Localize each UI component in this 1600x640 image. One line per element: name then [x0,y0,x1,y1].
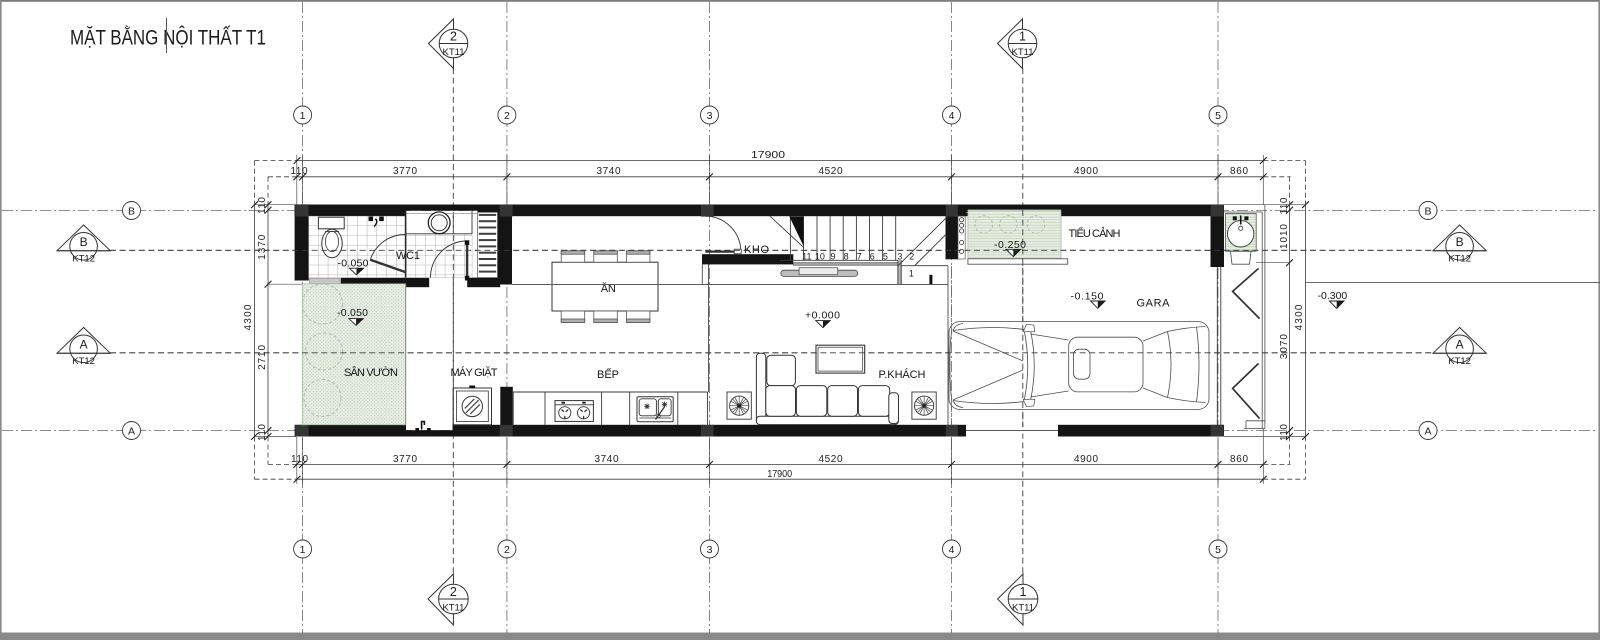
svg-text:1: 1 [1020,585,1027,599]
svg-text:A: A [1424,425,1431,437]
svg-text:1: 1 [300,544,306,556]
svg-text:4300: 4300 [243,304,254,330]
svg-text:860: 860 [1230,454,1248,465]
svg-text:110: 110 [291,166,308,177]
svg-text:3770: 3770 [393,166,417,177]
svg-text:2: 2 [504,110,510,122]
svg-text:2: 2 [504,544,510,556]
svg-text:KT11: KT11 [442,47,464,58]
svg-text:2: 2 [450,585,457,599]
svg-text:110: 110 [1279,424,1290,441]
svg-text:KT11: KT11 [442,603,464,614]
svg-text:4: 4 [949,544,955,556]
svg-text:110: 110 [257,424,268,441]
svg-text:SÂN VƯỜN: SÂN VƯỜN [344,366,398,379]
svg-text:3740: 3740 [597,166,621,177]
svg-text:860: 860 [1230,166,1248,177]
svg-text:1: 1 [909,269,914,279]
svg-text:2: 2 [909,252,914,262]
svg-text:MÁY GIẶT: MÁY GIẶT [451,366,498,379]
svg-text:5: 5 [1215,110,1221,122]
svg-text:3770: 3770 [393,454,417,465]
svg-text:B: B [80,235,88,249]
svg-text:2: 2 [450,30,457,44]
svg-text:B: B [1424,205,1431,217]
svg-text:5: 5 [1215,544,1221,556]
svg-text:4: 4 [949,110,955,122]
svg-text:1: 1 [300,110,306,122]
svg-text:B: B [1456,235,1464,249]
svg-text:MẶT BẰNG NỘI THẤT T1: MẶT BẰNG NỘI THẤT T1 [70,25,266,50]
svg-text:110: 110 [257,197,268,214]
svg-text:KT11: KT11 [1012,603,1034,614]
svg-text:KT11: KT11 [1011,47,1033,58]
svg-text:17900: 17900 [767,469,792,480]
svg-text:3070: 3070 [1279,334,1290,359]
svg-text:-0.300: -0.300 [1318,290,1348,302]
svg-text:8: 8 [844,252,849,262]
svg-text:5: 5 [883,252,888,262]
svg-text:A: A [80,338,88,352]
svg-text:TIỂU CẢNH: TIỂU CẢNH [1069,227,1121,240]
svg-text:KT12: KT12 [72,254,95,265]
svg-text:A: A [128,425,135,437]
svg-text:4900: 4900 [1074,454,1098,465]
svg-text:110: 110 [1279,197,1290,214]
svg-text:3: 3 [707,110,713,122]
svg-text:11: 11 [802,252,811,262]
svg-text:3: 3 [897,252,902,262]
svg-text:-0.050: -0.050 [337,307,368,319]
svg-text:KT12: KT12 [1448,254,1471,265]
svg-text:4300: 4300 [1294,304,1305,330]
svg-text:3740: 3740 [595,454,619,465]
svg-text:17900: 17900 [751,150,786,161]
svg-text:B: B [128,205,135,217]
svg-text:6: 6 [870,252,875,262]
svg-text:7: 7 [857,252,862,262]
svg-text:-0.050: -0.050 [338,258,369,270]
svg-text:BẾP: BẾP [597,368,619,381]
svg-text:1370: 1370 [257,234,268,259]
svg-text:2710: 2710 [257,344,268,369]
svg-text:1: 1 [1019,30,1026,44]
svg-text:3: 3 [707,544,713,556]
svg-text:WC1: WC1 [396,250,420,262]
svg-text:ĂN: ĂN [601,282,616,295]
svg-text:110: 110 [291,454,308,465]
svg-text:4520: 4520 [819,454,843,465]
svg-text:1010: 1010 [1279,224,1290,249]
svg-text:GARA: GARA [1137,297,1171,309]
svg-text:A: A [1456,338,1464,352]
svg-text:9: 9 [830,252,835,262]
svg-text:10: 10 [815,252,825,262]
svg-text:KT12: KT12 [72,356,95,367]
svg-text:+0.000: +0.000 [805,309,840,321]
svg-text:4900: 4900 [1074,166,1098,177]
svg-text:4520: 4520 [819,166,843,177]
svg-text:KT12: KT12 [1448,356,1471,367]
svg-text:P.KHÁCH: P.KHÁCH [879,368,926,381]
